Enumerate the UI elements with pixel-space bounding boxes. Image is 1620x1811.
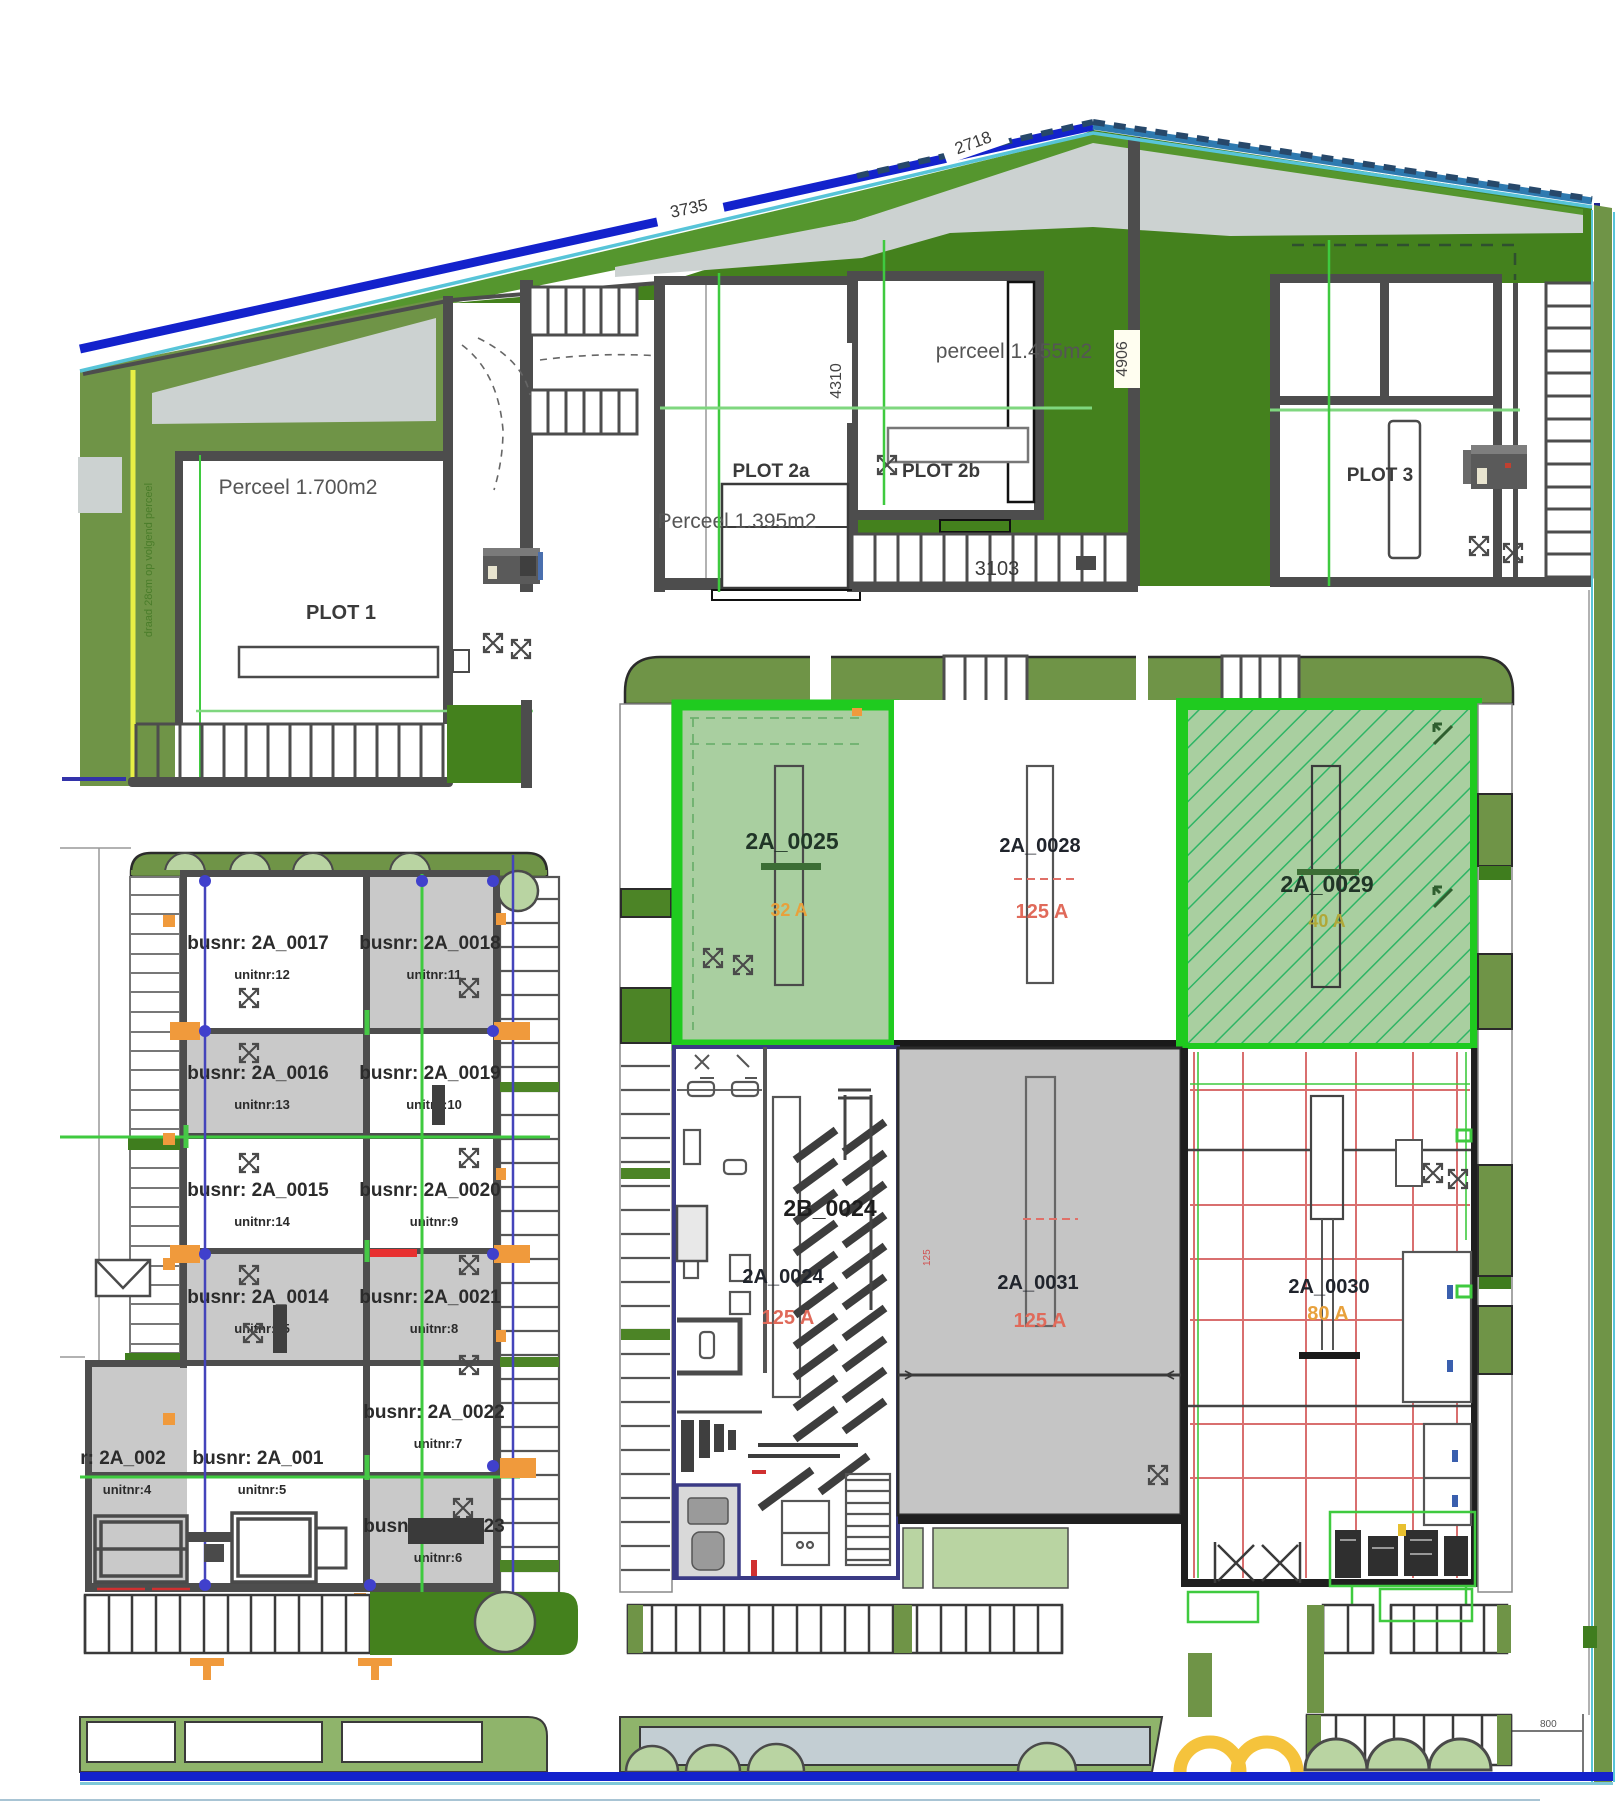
- svg-text:unitnr:9: unitnr:9: [410, 1214, 458, 1229]
- svg-text:125 A: 125 A: [762, 1307, 815, 1329]
- svg-text:busnr: 2A_0020: busnr: 2A_0020: [359, 1180, 501, 1201]
- svg-text:2A_0028: 2A_0028: [999, 835, 1080, 857]
- svg-text:busnr: 2A_0016: busnr: 2A_0016: [187, 1063, 329, 1084]
- svg-text:unitnr:12: unitnr:12: [234, 967, 290, 982]
- svg-text:busnr: 2A_0022: busnr: 2A_0022: [363, 1402, 505, 1423]
- svg-text:unitnr:8: unitnr:8: [410, 1321, 458, 1336]
- svg-text:125 A: 125 A: [1014, 1310, 1067, 1332]
- svg-text:busnr: 2A_0019: busnr: 2A_0019: [359, 1063, 501, 1084]
- svg-text:busnr: 2A_001: busnr: 2A_001: [193, 1448, 324, 1469]
- svg-text:unitnr:11: unitnr:11: [407, 967, 462, 982]
- svg-text:busnr: 2A_0021: busnr: 2A_0021: [359, 1287, 501, 1308]
- svg-text:80 A: 80 A: [1307, 1303, 1349, 1325]
- svg-text:busnr: 2A_0015: busnr: 2A_0015: [187, 1180, 329, 1201]
- svg-text:PLOT 3: PLOT 3: [1347, 465, 1414, 486]
- svg-text:2A_0024: 2A_0024: [742, 1266, 824, 1288]
- svg-text:2B_0024: 2B_0024: [783, 1195, 877, 1221]
- svg-text:4310: 4310: [828, 363, 845, 399]
- svg-text:2A_0030: 2A_0030: [1288, 1276, 1369, 1298]
- svg-text:800: 800: [1540, 1719, 1557, 1730]
- svg-text:draad 28cm op volgend perceel: draad 28cm op volgend perceel: [143, 483, 155, 637]
- svg-text:unitnr:5: unitnr:5: [238, 1482, 286, 1497]
- svg-text:4906: 4906: [1114, 341, 1131, 377]
- svg-text:PLOT 2a: PLOT 2a: [732, 461, 810, 482]
- svg-text:unitnr:4: unitnr:4: [103, 1482, 152, 1497]
- svg-text:r: 2A_002: r: 2A_002: [80, 1448, 166, 1469]
- svg-text:2A_0029: 2A_0029: [1280, 871, 1373, 897]
- svg-text:2A_0031: 2A_0031: [997, 1272, 1078, 1294]
- svg-text:PLOT 2b: PLOT 2b: [902, 461, 980, 482]
- svg-text:busnr: 2A_0014: busnr: 2A_0014: [187, 1287, 329, 1308]
- svg-text:3103: 3103: [975, 558, 1020, 580]
- svg-text:busnr: 2A_0018: busnr: 2A_0018: [359, 933, 501, 954]
- svg-text:125 A: 125 A: [1016, 901, 1069, 923]
- svg-text:perceel 1.455m2: perceel 1.455m2: [936, 340, 1092, 363]
- svg-text:40 A: 40 A: [1308, 911, 1345, 931]
- svg-text:busnr: 2A_0017: busnr: 2A_0017: [187, 933, 329, 954]
- svg-text:unitnr:13: unitnr:13: [234, 1097, 290, 1112]
- svg-text:125: 125: [922, 1249, 933, 1266]
- svg-text:Perceel 1.700m2: Perceel 1.700m2: [219, 476, 378, 499]
- svg-text:Perceel 1.395m2: Perceel 1.395m2: [658, 510, 817, 533]
- svg-text:PLOT 1: PLOT 1: [306, 602, 376, 624]
- svg-text:unitnr:14: unitnr:14: [234, 1214, 290, 1229]
- svg-text:2A_0025: 2A_0025: [745, 828, 839, 854]
- svg-text:32 A: 32 A: [770, 900, 807, 920]
